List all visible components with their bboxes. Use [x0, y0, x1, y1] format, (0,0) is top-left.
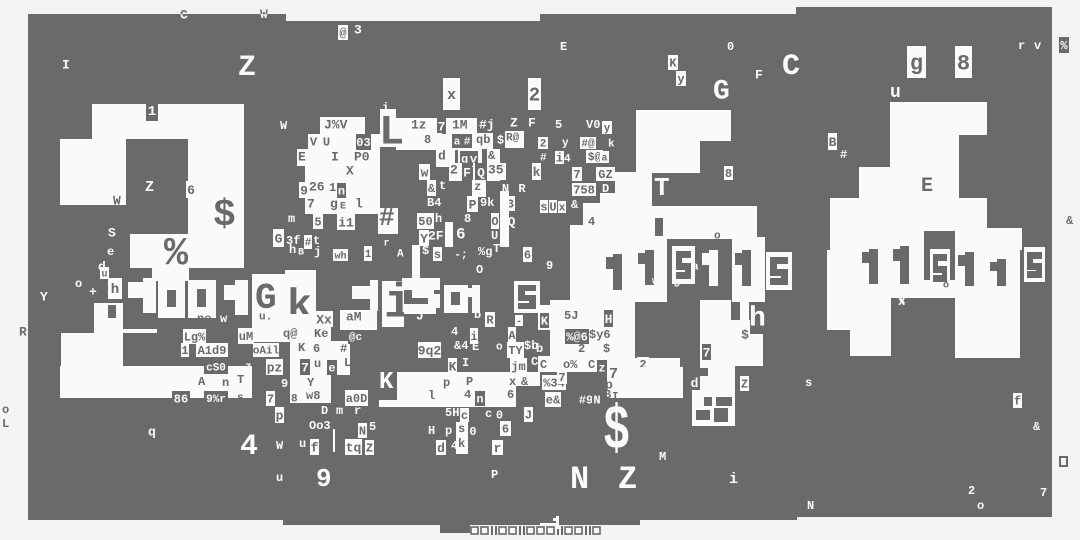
- svg-text:Z: Z: [618, 461, 637, 498]
- svg-text:O: O: [476, 263, 483, 277]
- svg-text:P0: P0: [354, 150, 370, 165]
- svg-text:26: 26: [309, 180, 325, 195]
- svg-text:t: t: [439, 179, 446, 193]
- svg-text:#: #: [540, 152, 547, 164]
- svg-text:-: -: [516, 317, 522, 328]
- svg-text:k: k: [608, 138, 615, 150]
- svg-text:Z: Z: [366, 442, 373, 456]
- svg-text:u.: u.: [259, 311, 272, 323]
- svg-text:cS0: cS0: [206, 363, 226, 375]
- svg-text:3: 3: [354, 23, 362, 38]
- svg-text:$: $: [497, 134, 504, 148]
- svg-text:w8: w8: [306, 389, 320, 403]
- svg-text:Y: Y: [40, 290, 48, 305]
- svg-text:+: +: [89, 285, 97, 300]
- svg-text:$: $: [213, 194, 236, 237]
- svg-text:y: y: [677, 73, 684, 87]
- svg-text:o: o: [714, 230, 721, 242]
- svg-text:#j: #j: [479, 118, 495, 133]
- svg-text:w: w: [421, 165, 429, 180]
- svg-text:$: $: [422, 244, 429, 258]
- svg-text:a: a: [601, 153, 607, 164]
- svg-text:Z: Z: [741, 378, 748, 392]
- svg-text:2F: 2F: [428, 229, 444, 244]
- svg-text:&: &: [488, 149, 496, 163]
- svg-text:8: 8: [725, 167, 732, 181]
- svg-text:f: f: [1014, 395, 1021, 409]
- svg-text:E: E: [560, 40, 567, 54]
- svg-text:A: A: [508, 329, 516, 343]
- svg-text:y: y: [562, 137, 569, 149]
- svg-text:s: s: [540, 201, 547, 215]
- svg-text:C: C: [588, 358, 595, 372]
- svg-text:&: &: [571, 198, 579, 212]
- svg-text:A1d9: A1d9: [198, 344, 227, 358]
- svg-text:T: T: [493, 242, 500, 256]
- svg-text:7: 7: [558, 371, 565, 385]
- svg-text:6: 6: [187, 183, 195, 198]
- svg-text:B: B: [298, 248, 304, 259]
- svg-text:P: P: [466, 375, 473, 389]
- svg-text:R: R: [486, 314, 494, 328]
- svg-text:35: 35: [488, 163, 504, 178]
- svg-text:F: F: [528, 116, 536, 131]
- svg-text:E: E: [298, 150, 306, 165]
- svg-text:qb: qb: [476, 133, 490, 147]
- svg-text:0: 0: [727, 40, 734, 54]
- svg-text:u: u: [299, 437, 306, 451]
- svg-text:A: A: [397, 248, 404, 260]
- svg-text:oAil: oAil: [253, 346, 280, 358]
- svg-text:$y6: $y6: [589, 328, 611, 342]
- svg-text:o: o: [496, 341, 503, 353]
- svg-text:2: 2: [968, 484, 975, 498]
- svg-text:1: 1: [181, 344, 188, 358]
- svg-text:R: R: [518, 182, 526, 196]
- svg-text:H: H: [605, 312, 613, 327]
- svg-text:D: D: [321, 404, 328, 418]
- svg-text:m: m: [288, 212, 295, 226]
- svg-text:w: w: [220, 312, 228, 326]
- svg-text:%g: %g: [478, 245, 492, 259]
- svg-text:I: I: [331, 150, 339, 165]
- svg-text:ne: ne: [197, 312, 211, 326]
- svg-text:i: i: [556, 152, 563, 166]
- svg-text:F: F: [755, 68, 763, 83]
- svg-text:1z: 1z: [411, 118, 427, 133]
- svg-text:x: x: [559, 203, 566, 215]
- svg-text:z: z: [245, 361, 252, 373]
- svg-text:758: 758: [573, 184, 595, 198]
- svg-text:$: $: [603, 342, 610, 356]
- svg-text:4: 4: [240, 430, 258, 464]
- svg-text:W: W: [276, 439, 284, 453]
- svg-text:7: 7: [438, 119, 446, 134]
- svg-text:$@: $@: [588, 152, 602, 164]
- svg-text:o: o: [977, 499, 984, 513]
- svg-text:J: J: [525, 409, 532, 423]
- svg-text:a: a: [692, 261, 699, 273]
- svg-text:l: l: [355, 197, 363, 212]
- svg-text:9: 9: [546, 259, 553, 273]
- svg-text:e: e: [107, 245, 114, 259]
- svg-text:#: #: [840, 148, 847, 162]
- svg-text:r: r: [354, 404, 361, 418]
- svg-text:h: h: [111, 282, 119, 298]
- svg-text:h: h: [749, 304, 766, 335]
- svg-text:z: z: [474, 180, 481, 194]
- svg-text:u: u: [101, 269, 107, 280]
- svg-text:%: %: [164, 232, 189, 277]
- svg-text:4: 4: [464, 388, 471, 402]
- svg-text:9q2: 9q2: [418, 343, 442, 358]
- svg-text:C: C: [782, 50, 800, 84]
- svg-text:P: P: [469, 197, 477, 212]
- svg-text:s: s: [805, 376, 812, 390]
- svg-text:pz: pz: [267, 360, 283, 375]
- svg-text:86: 86: [174, 393, 188, 407]
- svg-text:-;: -;: [454, 250, 467, 262]
- svg-text:w: w: [652, 277, 658, 288]
- svg-text:6: 6: [502, 423, 509, 437]
- svg-text:y: y: [604, 123, 611, 135]
- svg-text:5: 5: [555, 118, 562, 132]
- svg-text:uM: uM: [239, 330, 253, 344]
- svg-text:9: 9: [316, 464, 332, 494]
- svg-text:2: 2: [529, 84, 540, 106]
- svg-text:6: 6: [313, 342, 320, 356]
- svg-text:U: U: [491, 229, 498, 243]
- svg-text:b: b: [536, 342, 543, 356]
- svg-text:l: l: [428, 389, 435, 403]
- svg-text:U: U: [323, 136, 330, 150]
- svg-text:J: J: [416, 309, 424, 324]
- svg-text:S: S: [108, 226, 116, 241]
- svg-text:#: #: [464, 137, 471, 149]
- svg-text:I: I: [462, 356, 469, 370]
- svg-text:#9: #9: [579, 394, 593, 408]
- svg-text:&: &: [521, 375, 529, 389]
- svg-text:e&: e&: [546, 394, 561, 408]
- svg-text:Z: Z: [238, 51, 256, 85]
- svg-text:a: a: [454, 137, 461, 149]
- svg-text:p: p: [443, 376, 450, 390]
- svg-text:#: #: [379, 203, 395, 233]
- svg-text:G: G: [713, 77, 730, 108]
- svg-text:I: I: [62, 58, 70, 73]
- svg-text:W: W: [280, 119, 288, 133]
- svg-text:#: #: [340, 342, 347, 356]
- svg-text:x: x: [447, 87, 456, 104]
- svg-text:wh: wh: [334, 250, 346, 262]
- svg-text:@c: @c: [349, 332, 362, 344]
- svg-text:i1: i1: [338, 215, 354, 230]
- svg-text:q: q: [148, 425, 156, 440]
- svg-text:&4: &4: [454, 339, 468, 353]
- svg-text:N: N: [359, 425, 366, 439]
- svg-text:d: d: [691, 376, 699, 391]
- svg-text:N: N: [570, 461, 589, 498]
- svg-text:r: r: [494, 441, 502, 456]
- svg-text:Ke: Ke: [314, 327, 328, 341]
- svg-text:Z: Z: [510, 116, 518, 131]
- svg-text:P: P: [491, 468, 498, 482]
- svg-text:4: 4: [451, 439, 458, 453]
- svg-text:1: 1: [148, 104, 156, 120]
- svg-text:o: o: [2, 403, 9, 417]
- svg-text:L: L: [2, 417, 9, 431]
- svg-text:A: A: [198, 375, 206, 389]
- svg-text:5H: 5H: [445, 406, 459, 420]
- svg-text:1M: 1M: [452, 118, 468, 133]
- svg-text:&: &: [428, 182, 436, 196]
- svg-text:r: r: [1018, 39, 1025, 53]
- svg-text:z: z: [598, 362, 605, 376]
- svg-text:h: h: [289, 243, 296, 257]
- svg-text:7: 7: [267, 393, 274, 407]
- svg-text:1: 1: [329, 181, 336, 195]
- svg-text:#@: #@: [581, 139, 595, 151]
- svg-text:aM: aM: [346, 310, 362, 325]
- svg-text:V: V: [310, 136, 318, 150]
- svg-text:o: o: [75, 277, 82, 291]
- svg-text:7: 7: [301, 360, 309, 375]
- svg-text:C: C: [540, 358, 547, 372]
- svg-text:&: &: [1066, 214, 1074, 228]
- svg-text:L: L: [344, 356, 351, 370]
- svg-text:o: o: [943, 281, 949, 292]
- svg-text:7: 7: [573, 168, 580, 182]
- svg-text:Y: Y: [307, 376, 315, 390]
- svg-text:p: p: [276, 408, 284, 423]
- svg-text:K: K: [669, 57, 677, 71]
- svg-text:E: E: [340, 202, 346, 213]
- svg-text:4: 4: [564, 153, 571, 165]
- svg-text:$: $: [741, 327, 749, 342]
- svg-text:6: 6: [456, 226, 466, 244]
- svg-text:9%r: 9%r: [206, 394, 226, 406]
- svg-text:O: O: [491, 215, 498, 229]
- svg-text:W: W: [113, 194, 121, 209]
- svg-text:s: s: [434, 248, 441, 262]
- svg-text:u: u: [890, 83, 901, 103]
- svg-text:50: 50: [418, 215, 432, 229]
- svg-text:K: K: [449, 359, 457, 374]
- svg-text:GZ: GZ: [598, 168, 612, 182]
- svg-text:@: @: [339, 27, 346, 41]
- svg-text:Xx: Xx: [316, 312, 332, 327]
- svg-text:g: g: [910, 51, 923, 76]
- svg-text:7: 7: [1040, 486, 1047, 500]
- svg-text:u: u: [276, 471, 283, 485]
- svg-text:jm: jm: [511, 360, 525, 374]
- svg-text:Z: Z: [145, 179, 154, 196]
- svg-text:N: N: [807, 499, 814, 513]
- svg-text:E: E: [472, 340, 479, 354]
- svg-text:7: 7: [703, 345, 711, 360]
- svg-text:s: s: [237, 392, 244, 404]
- svg-text:d: d: [438, 149, 446, 164]
- svg-text:#: #: [305, 238, 312, 250]
- svg-text:o%: o%: [563, 358, 578, 372]
- svg-text:E: E: [921, 175, 933, 198]
- svg-text:k: k: [533, 165, 541, 180]
- svg-text:Oo3: Oo3: [309, 419, 331, 433]
- svg-text:f: f: [311, 440, 319, 455]
- svg-text:n: n: [476, 393, 483, 407]
- svg-text:L: L: [379, 109, 404, 157]
- svg-text:u: u: [314, 357, 321, 371]
- svg-text:U: U: [549, 201, 556, 215]
- svg-text:2: 2: [540, 139, 547, 151]
- svg-text:x: x: [899, 295, 906, 307]
- svg-text:5: 5: [369, 420, 376, 434]
- svg-text:X: X: [346, 164, 354, 179]
- svg-text:K: K: [298, 341, 306, 355]
- svg-text:R@: R@: [506, 132, 520, 144]
- svg-text:s: s: [458, 422, 465, 436]
- svg-text:c: c: [461, 409, 468, 423]
- svg-text:0: 0: [496, 409, 503, 423]
- svg-text:g: g: [330, 197, 338, 212]
- svg-text:9k: 9k: [480, 196, 494, 210]
- svg-text:N: N: [593, 394, 600, 408]
- svg-text:p: p: [445, 424, 452, 438]
- svg-text:n: n: [338, 185, 345, 199]
- svg-text:Lg%: Lg%: [184, 331, 206, 345]
- svg-text:x: x: [509, 375, 516, 389]
- svg-text:R: R: [19, 325, 27, 340]
- svg-text:8: 8: [957, 51, 970, 76]
- svg-text:C: C: [531, 355, 538, 369]
- svg-text:0: 0: [469, 425, 476, 439]
- svg-text:V0: V0: [586, 118, 600, 132]
- svg-text:&: &: [1033, 420, 1041, 434]
- svg-text:B4: B4: [427, 196, 441, 210]
- svg-text:1: 1: [365, 249, 372, 261]
- svg-text:9: 9: [281, 377, 288, 391]
- svg-text:TY: TY: [508, 344, 523, 358]
- svg-text:K: K: [379, 369, 394, 396]
- svg-text:G: G: [275, 231, 283, 246]
- svg-text:8: 8: [291, 393, 298, 405]
- svg-text:2: 2: [578, 342, 585, 356]
- svg-text:m: m: [336, 404, 343, 418]
- svg-text:03: 03: [356, 136, 370, 150]
- svg-text:4: 4: [451, 325, 458, 339]
- svg-text:B: B: [829, 135, 837, 150]
- svg-text:$: $: [603, 396, 630, 467]
- svg-text:T: T: [654, 173, 670, 203]
- svg-text:T: T: [237, 373, 244, 387]
- svg-text:M: M: [659, 450, 666, 464]
- svg-text:6: 6: [507, 388, 514, 402]
- svg-text:%: %: [1060, 39, 1068, 53]
- svg-text:8: 8: [424, 133, 431, 147]
- svg-text:e: e: [328, 362, 335, 376]
- svg-text:Q: Q: [477, 165, 485, 180]
- svg-text:tq: tq: [346, 440, 362, 455]
- svg-text:c: c: [485, 407, 492, 421]
- svg-text:b: b: [474, 308, 481, 322]
- svg-text:6: 6: [524, 249, 531, 263]
- svg-text:d: d: [437, 441, 445, 456]
- svg-text:5J: 5J: [564, 309, 578, 323]
- svg-text:D: D: [674, 280, 680, 291]
- svg-text:H: H: [428, 424, 435, 438]
- svg-text:J%V: J%V: [324, 118, 348, 133]
- svg-text:7: 7: [307, 197, 315, 212]
- svg-text:5: 5: [314, 216, 321, 230]
- svg-text:q@: q@: [283, 327, 297, 341]
- svg-text:i: i: [729, 471, 738, 488]
- svg-text:2: 2: [450, 163, 458, 178]
- svg-text:4: 4: [588, 215, 595, 229]
- svg-text:K: K: [541, 315, 549, 329]
- svg-text:k: k: [458, 437, 465, 451]
- svg-text:r: r: [383, 238, 389, 249]
- svg-text:v: v: [1034, 39, 1041, 53]
- svg-text:n: n: [222, 376, 229, 390]
- svg-text:h: h: [435, 212, 442, 226]
- svg-text:F: F: [463, 165, 471, 180]
- svg-text:j: j: [314, 245, 321, 259]
